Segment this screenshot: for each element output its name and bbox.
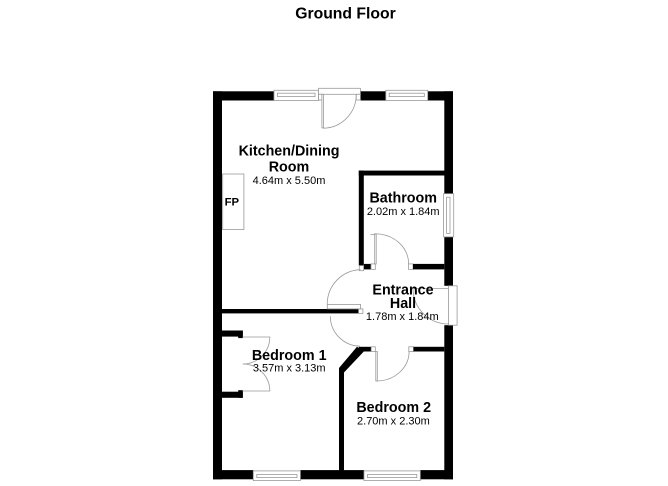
svg-text:Hall: Hall [390, 296, 416, 312]
svg-text:4.64m x 5.50m: 4.64m x 5.50m [253, 175, 326, 187]
svg-text:2.02m x 1.84m: 2.02m x 1.84m [367, 206, 440, 218]
svg-text:Kitchen/Dining: Kitchen/Dining [239, 143, 340, 159]
svg-text:FP: FP [225, 197, 240, 209]
svg-text:Bedroom 2: Bedroom 2 [356, 400, 431, 416]
svg-text:Ground Floor: Ground Floor [295, 6, 396, 23]
svg-text:Bathroom: Bathroom [369, 190, 437, 206]
svg-text:Room: Room [269, 159, 310, 175]
svg-text:1.78m x 1.84m: 1.78m x 1.84m [366, 311, 439, 323]
svg-text:2.70m x 2.30m: 2.70m x 2.30m [357, 415, 430, 427]
svg-text:3.57m x 3.13m: 3.57m x 3.13m [253, 362, 326, 374]
